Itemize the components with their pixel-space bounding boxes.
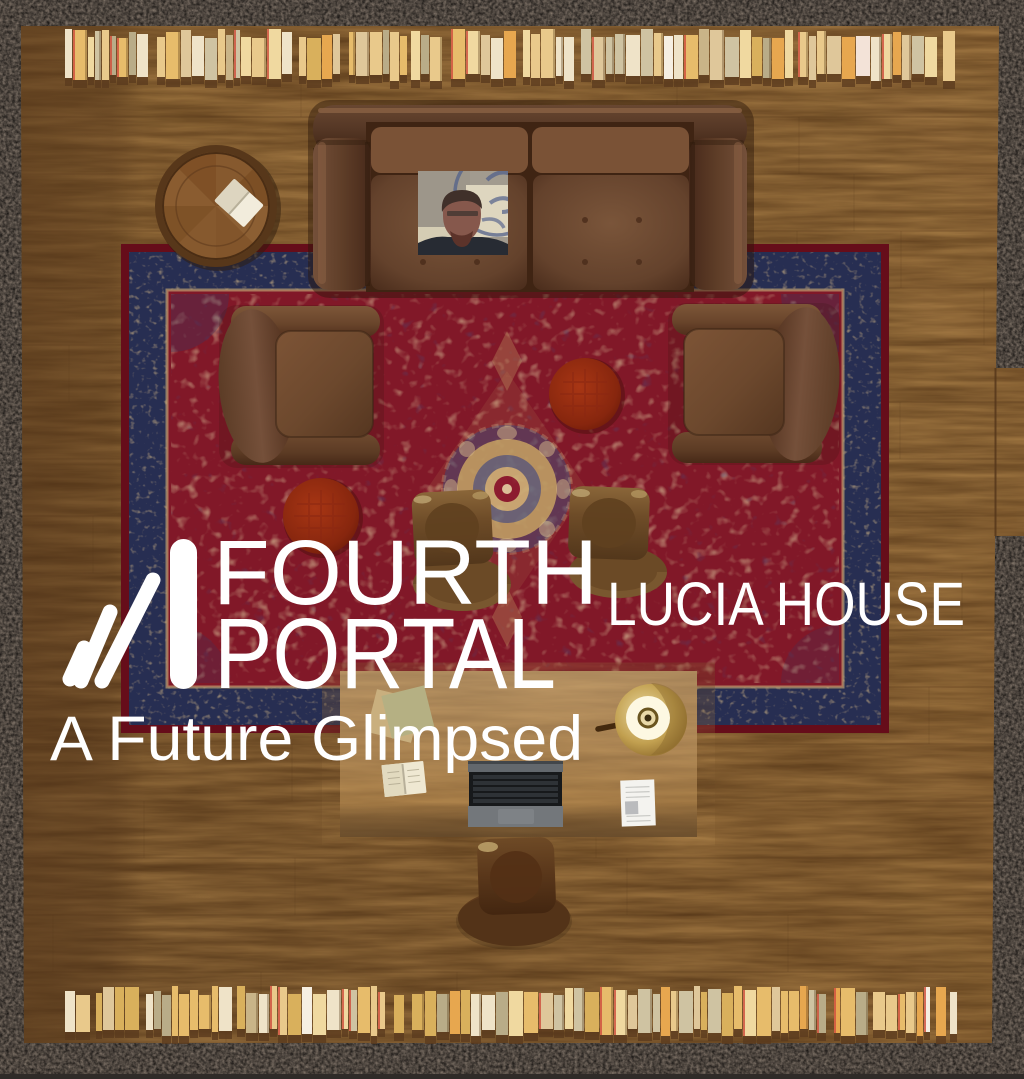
svg-text:A Future Glimpsed: A Future Glimpsed (50, 704, 583, 774)
svg-text:LUCIA HOUSE: LUCIA HOUSE (607, 570, 965, 638)
svg-text:PORTAL: PORTAL (214, 598, 556, 710)
